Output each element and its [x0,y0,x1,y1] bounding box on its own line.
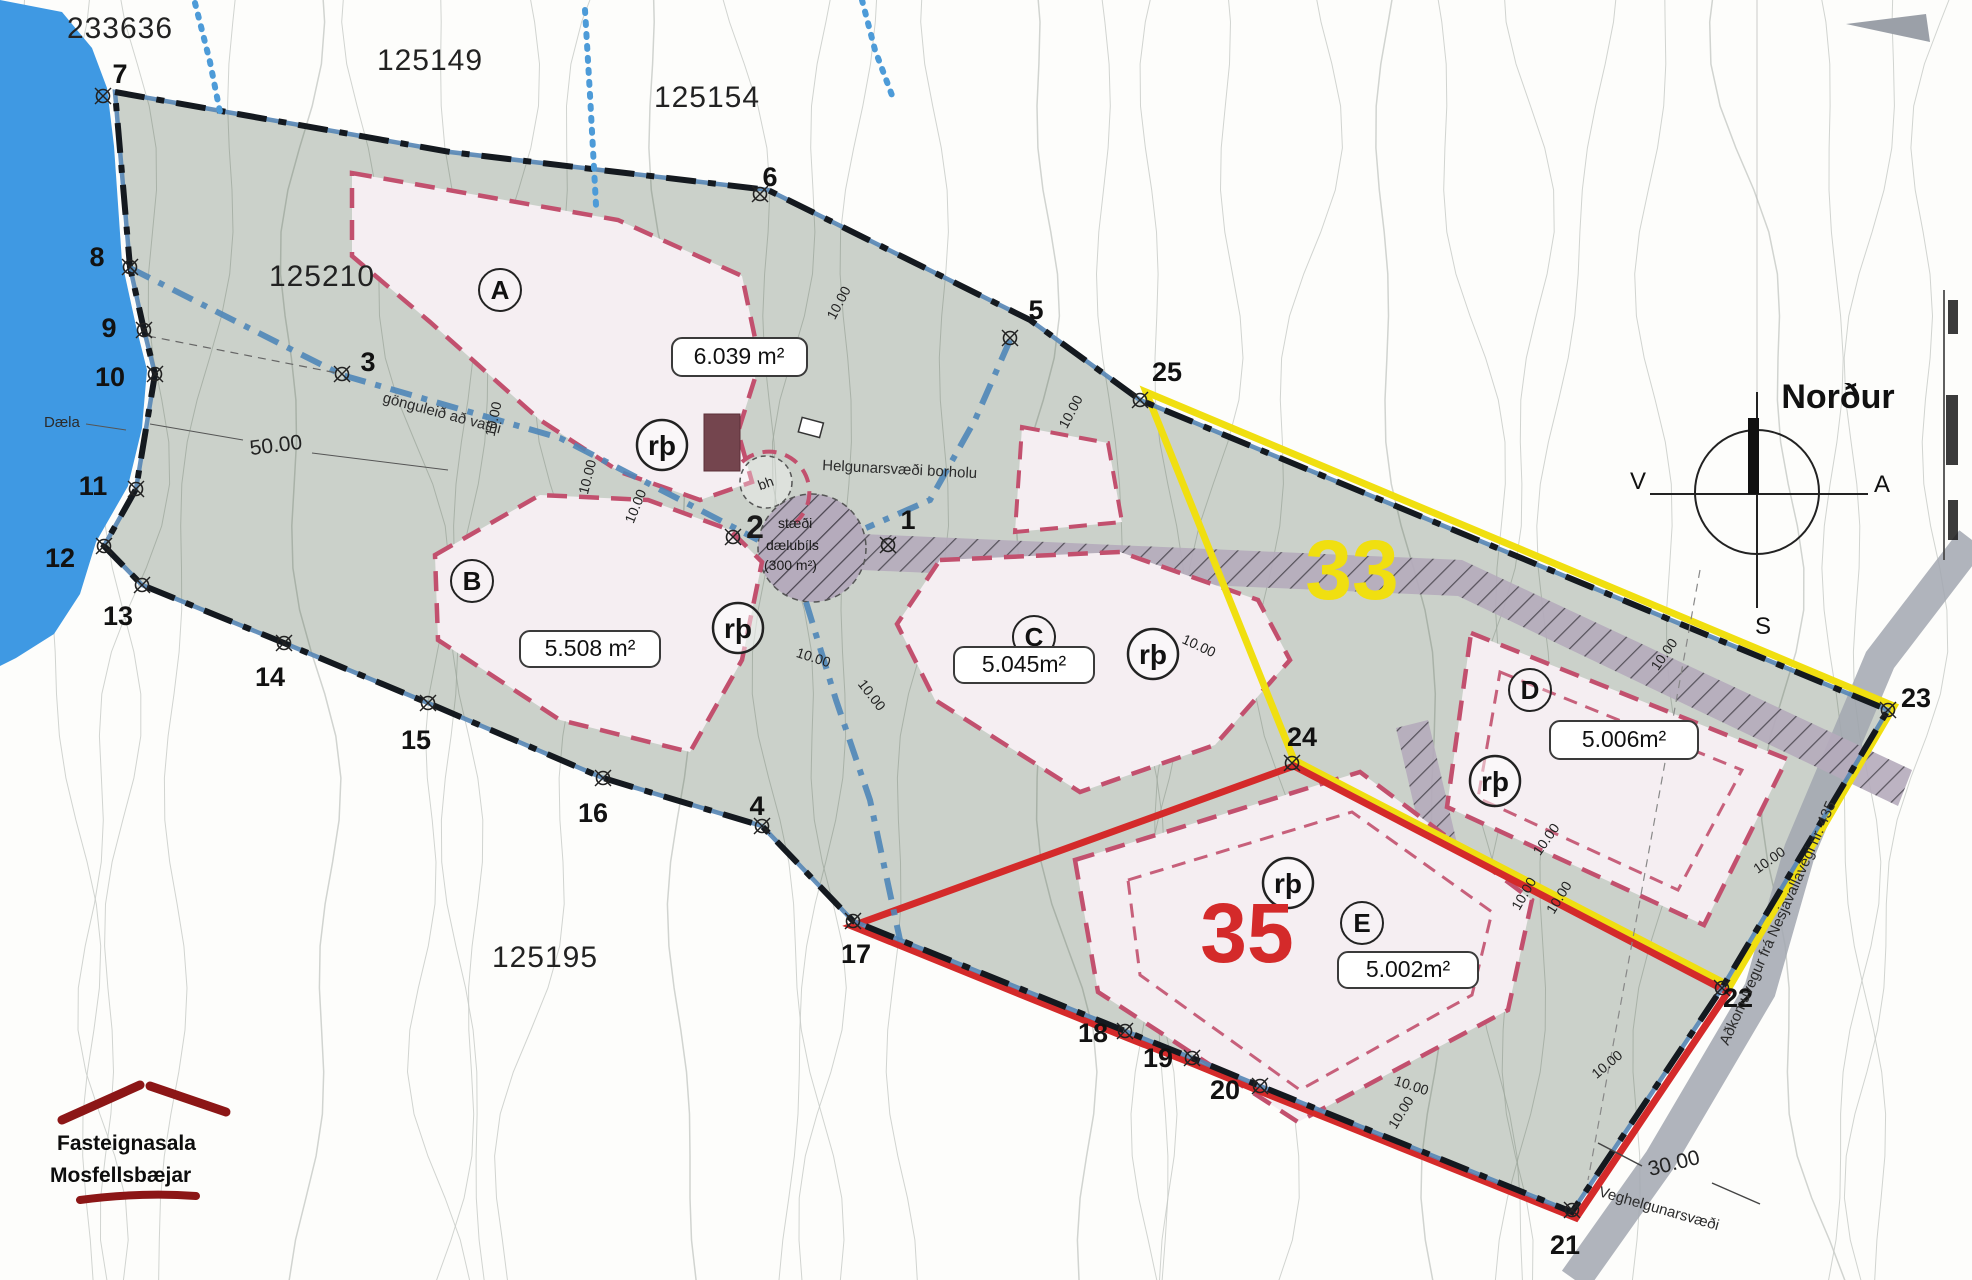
svg-text:A: A [491,275,510,305]
svg-text:21: 21 [1550,1230,1580,1260]
logo-underline [80,1195,196,1200]
plot-125154: 125154 [654,81,760,114]
svg-text:1: 1 [900,505,915,535]
svg-text:16: 16 [578,798,608,828]
rp-symbol-C: rþ [1128,629,1178,679]
parcel-small [1015,427,1122,532]
svg-text:rþ: rþ [648,430,676,461]
svg-text:5.006m²: 5.006m² [1582,726,1667,752]
svg-text:20: 20 [1210,1075,1240,1105]
svg-text:3: 3 [360,347,375,377]
svg-text:V: V [1630,468,1646,495]
compass: Norður V A S [1630,0,1895,640]
svg-text:5.508 m²: 5.508 m² [545,635,636,661]
svg-text:25: 25 [1152,357,1182,387]
area-box-E: 5.002m² [1338,952,1478,988]
svg-text:B: B [463,566,482,596]
rp-symbol-B: rþ [713,603,763,653]
svg-text:5.045m²: 5.045m² [982,651,1067,677]
svg-text:11: 11 [79,471,108,501]
svg-text:rþ: rþ [724,613,752,644]
svg-text:stæði: stæði [778,515,812,531]
svg-text:D: D [1521,675,1540,705]
logo-roof-left [62,1085,140,1120]
svg-text:7: 7 [112,59,127,89]
dim30-leader-2 [1712,1183,1760,1204]
svg-text:2: 2 [746,509,764,545]
svg-text:A: A [1874,471,1890,498]
north-arrow [1748,418,1759,494]
svg-text:14: 14 [255,662,285,692]
svg-text:6: 6 [762,162,777,192]
plot-233636: 233636 [67,12,173,45]
svg-text:8: 8 [89,242,104,272]
parcel-D-badge: D [1509,669,1551,711]
rp-symbol-D: rþ [1470,756,1520,806]
parcel-B-badge: B [451,560,493,602]
svg-text:18: 18 [1078,1018,1108,1048]
svg-text:4: 4 [749,791,764,821]
svg-text:13: 13 [103,601,133,631]
parcel-E-badge: E [1341,902,1383,944]
svg-text:rþ: rþ [1139,639,1167,670]
road-wedge [1846,14,1930,42]
svg-text:S: S [1755,613,1771,640]
svg-text:15: 15 [401,725,431,755]
svg-text:6.039 m²: 6.039 m² [694,343,785,369]
stream-1 [195,3,220,112]
svg-text:24: 24 [1287,722,1317,752]
logo-roof-right [150,1086,226,1112]
plot-125149: 125149 [377,44,483,77]
scan-edge-artifact [1944,290,1958,560]
svg-text:5.002m²: 5.002m² [1366,956,1451,982]
plot-125210: 125210 [269,260,375,293]
compass-title: Norður [1781,378,1894,416]
svg-text:E: E [1353,908,1370,938]
plot-125195: 125195 [492,941,598,974]
svg-text:19: 19 [1143,1043,1173,1073]
area-box-A: 6.039 m² [672,338,807,376]
svg-text:5: 5 [1028,295,1043,325]
logo: Fasteignasala Mosfellsbæjar [50,1085,226,1200]
svg-text:10: 10 [95,362,125,392]
parcel-A-badge: A [479,269,521,311]
logo-line1: Fasteignasala [57,1132,196,1155]
building [704,414,740,471]
zone-33-number: 33 [1305,523,1398,617]
logo-line2: Mosfellsbæjar [50,1164,191,1187]
svg-text:(300 m²): (300 m²) [764,557,817,573]
svg-text:dælubíls: dælubíls [766,537,819,553]
svg-text:rþ: rþ [1481,766,1509,797]
area-box-C: 5.045m² [954,647,1094,683]
cadastral-map: bh A B C D E rþ rþ rþ rþ rþ 6.039 m² 5.5… [0,0,1972,1280]
svg-text:9: 9 [101,313,116,343]
svg-text:23: 23 [1901,683,1931,713]
rp-symbol-A: rþ [637,420,687,470]
area-box-B: 5.508 m² [520,631,660,667]
area-box-D: 5.006m² [1550,721,1698,759]
svg-text:17: 17 [841,939,871,969]
zone-35-number: 35 [1200,886,1293,980]
svg-text:12: 12 [45,543,75,573]
daela-label: Dæla [44,414,81,431]
